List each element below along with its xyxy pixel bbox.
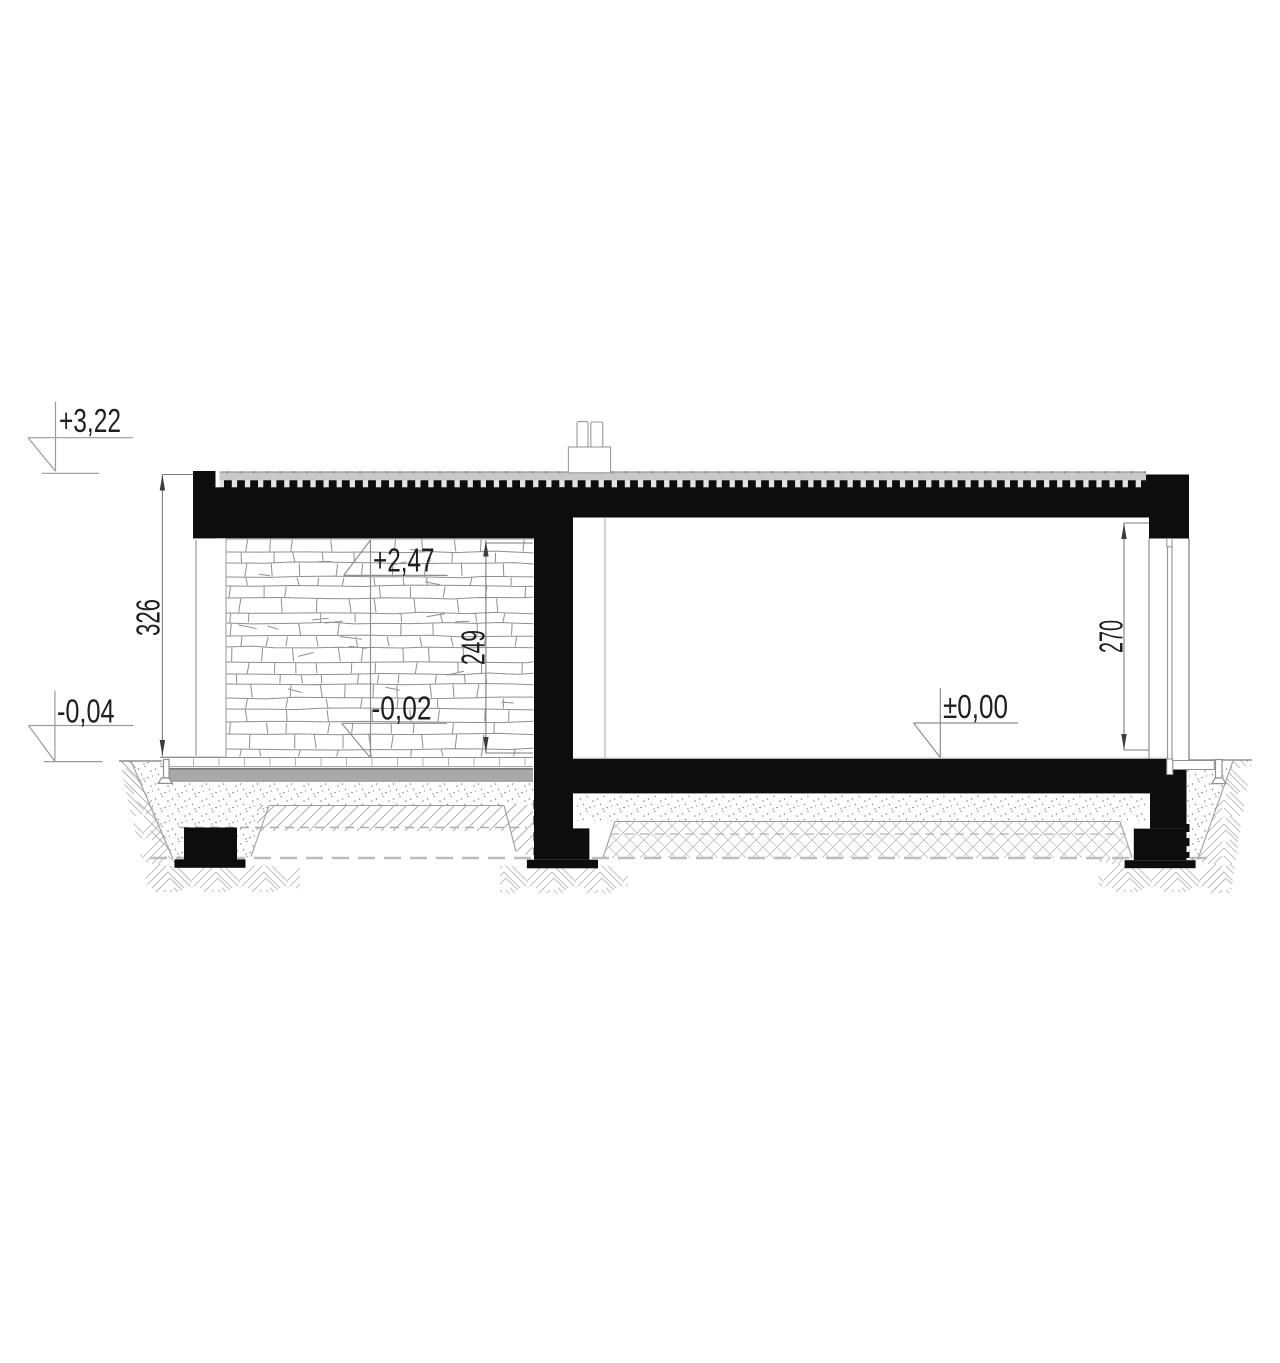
- svg-text:±0,00: ±0,00: [943, 688, 1008, 725]
- svg-text:326: 326: [130, 599, 167, 636]
- svg-text:249: 249: [455, 630, 492, 665]
- svg-text:+2,47: +2,47: [373, 542, 435, 579]
- svg-text:-0,04: -0,04: [57, 693, 115, 730]
- svg-text:+3,22: +3,22: [59, 402, 121, 439]
- svg-text:270: 270: [1093, 620, 1130, 653]
- svg-text:-0,02: -0,02: [372, 690, 432, 727]
